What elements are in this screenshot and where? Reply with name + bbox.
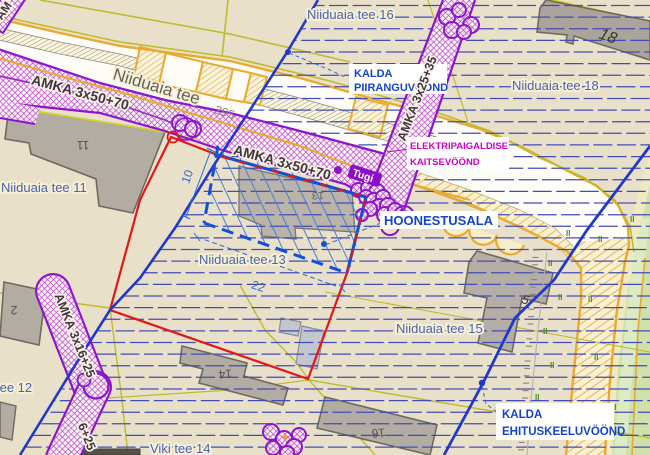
svg-text:II: II: [594, 353, 598, 362]
svg-text:16: 16: [371, 425, 386, 440]
svg-text:II: II: [630, 215, 634, 224]
svg-text:EHITUSKEELUVÖÖND: EHITUSKEELUVÖÖND: [502, 425, 625, 438]
svg-text:II: II: [548, 259, 552, 268]
svg-text:KALDA: KALDA: [502, 409, 542, 421]
svg-text:Niiduaia tee 18: Niiduaia tee 18: [512, 78, 599, 93]
svg-text:II: II: [550, 361, 554, 370]
svg-text:Viki tee 14: Viki tee 14: [150, 441, 210, 455]
svg-text:13: 13: [312, 189, 324, 201]
svg-text:KALDA: KALDA: [354, 68, 393, 80]
svg-text:2: 2: [10, 303, 17, 317]
svg-text:ELEKTRIPAIGALDISE: ELEKTRIPAIGALDISE: [410, 141, 508, 152]
svg-text:14: 14: [218, 366, 233, 381]
svg-text:Niiduaia tee 15: Niiduaia tee 15: [396, 321, 483, 336]
svg-text:II: II: [543, 327, 547, 336]
svg-text:Niiduaia tee 16: Niiduaia tee 16: [307, 7, 394, 22]
svg-text:11: 11: [76, 138, 89, 152]
svg-text:II: II: [598, 235, 602, 244]
svg-text:Niiduaia tee 11: Niiduaia tee 11: [1, 180, 87, 195]
svg-text:II: II: [588, 295, 592, 304]
svg-text:PIIRANGUVÖÖND: PIIRANGUVÖÖND: [354, 81, 448, 94]
svg-text:Niiduaia tee 13: Niiduaia tee 13: [199, 252, 286, 267]
svg-text:II: II: [535, 393, 539, 402]
svg-text:HOONESTUSALA: HOONESTUSALA: [384, 213, 494, 228]
svg-text:II: II: [558, 293, 562, 302]
svg-text:II: II: [566, 229, 570, 238]
svg-text:KAITSEVÖÖND: KAITSEVÖÖND: [410, 157, 480, 168]
svg-text:tee 12: tee 12: [0, 380, 32, 395]
